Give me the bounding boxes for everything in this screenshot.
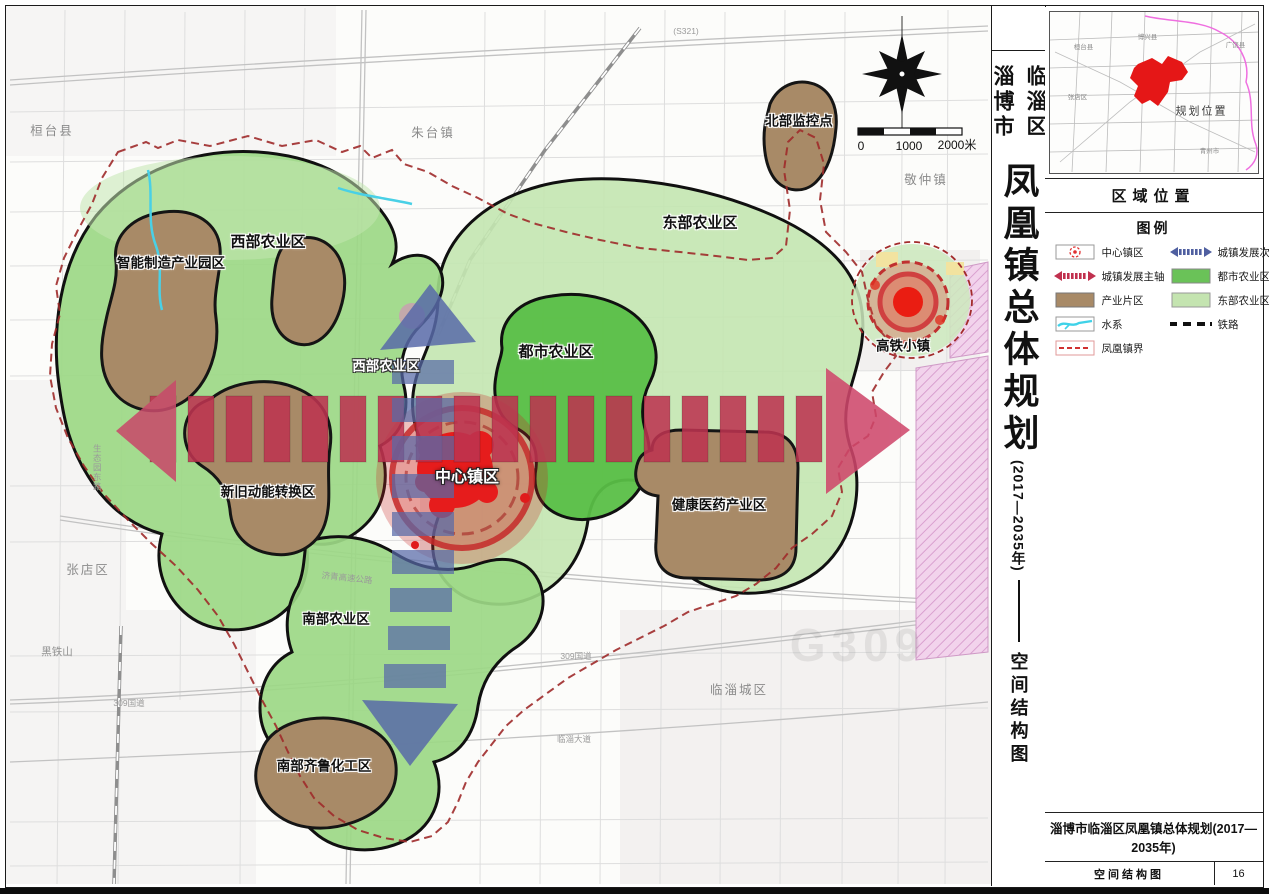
railway-icon xyxy=(1169,316,1213,332)
legend-label: 产业片区 xyxy=(1102,293,1144,308)
legend-item: 凤凰镇界 xyxy=(1053,340,1165,357)
locator-label: 博兴县 xyxy=(1138,34,1158,41)
plan-period: (2017—2035年) xyxy=(1012,460,1026,572)
legend-label: 凤凰镇界 xyxy=(1102,341,1144,356)
legend-item: 东部农业区 xyxy=(1169,292,1269,309)
info-panel: 桓台县 博兴县 广饶县 张店区 规划位置 青州市 区域位置 图例 中心镇区 xyxy=(1045,7,1263,887)
secondary-axis-icon xyxy=(1169,244,1213,260)
legend-title: 图例 xyxy=(1053,218,1255,238)
legend-item: 产业片区 xyxy=(1053,292,1165,309)
locator-header: 区域位置 xyxy=(1045,178,1263,213)
sheet-title-block: 淄博市临淄区凤凰镇总体规划(2017—2035年) 空间结构图 16 xyxy=(1045,812,1263,885)
bottom-rule xyxy=(0,888,1269,894)
locator-label: 张店区 xyxy=(1068,94,1088,101)
industry-swatch xyxy=(1053,292,1097,308)
main-axis-icon xyxy=(1053,268,1097,284)
legend-item: 中心镇区 xyxy=(1053,244,1165,261)
smart-manufacturing-park xyxy=(102,211,221,410)
east-agri-swatch xyxy=(1169,292,1213,308)
locator-label: 广饶县 xyxy=(1226,42,1246,49)
legend-label: 中心镇区 xyxy=(1102,245,1144,260)
project-title: 淄博市临淄区凤凰镇总体规划(2017—2035年) xyxy=(1045,813,1263,862)
legend-label: 东部农业区 xyxy=(1218,293,1269,308)
water-icon xyxy=(1053,316,1097,332)
metro-agri-swatch xyxy=(1169,268,1213,284)
jurisdiction-title: 淄博市 临淄区 xyxy=(987,65,1050,140)
scale-bar xyxy=(858,128,962,135)
plan-main-title: 凤凰镇总体规划 xyxy=(1001,162,1037,456)
town-boundary-icon xyxy=(1053,340,1097,356)
center-town-icon xyxy=(1053,244,1097,260)
locator-label: 桓台县 xyxy=(1074,44,1094,51)
legend-item: 城镇发展次轴 xyxy=(1169,244,1269,261)
legend-label: 铁路 xyxy=(1218,317,1239,332)
legend-item: 都市农业区 xyxy=(1169,268,1269,285)
city-name: 淄博市 xyxy=(987,65,1017,140)
locator-label: 青州市 xyxy=(1200,148,1220,155)
legend-label: 水系 xyxy=(1102,317,1123,332)
legend-item: 水系 xyxy=(1053,316,1165,333)
legend-label: 都市农业区 xyxy=(1218,269,1269,284)
legend: 图例 中心镇区 xyxy=(1045,213,1263,357)
south-qilu-chemical-zone xyxy=(256,718,396,828)
locator-plan-position-label: 规划位置 xyxy=(1176,106,1228,117)
legend-item: 城镇发展主轴 xyxy=(1053,268,1165,285)
drawing-name: 空间结构图 xyxy=(1045,866,1214,882)
title-strip: 淄博市 临淄区 凤凰镇总体规划 (2017—2035年) 空间结构图 xyxy=(991,6,1046,886)
sheet-number: 16 xyxy=(1214,862,1263,885)
legend-label: 城镇发展主轴 xyxy=(1102,269,1165,284)
strip-divider xyxy=(992,50,1045,51)
locator-map: 桓台县 博兴县 广饶县 张店区 规划位置 青州市 xyxy=(1049,11,1259,174)
title-dash xyxy=(1018,580,1020,642)
legend-item: 铁路 xyxy=(1169,316,1269,333)
legend-label: 城镇发展次轴 xyxy=(1218,245,1269,260)
plan-sheet: 桓台县 朱台镇 北部监控点 东部农业区 敬仲镇 西部农业区 智能制造产业园区 西… xyxy=(0,0,1269,896)
drawing-type-title: 空间结构图 xyxy=(1010,652,1028,767)
